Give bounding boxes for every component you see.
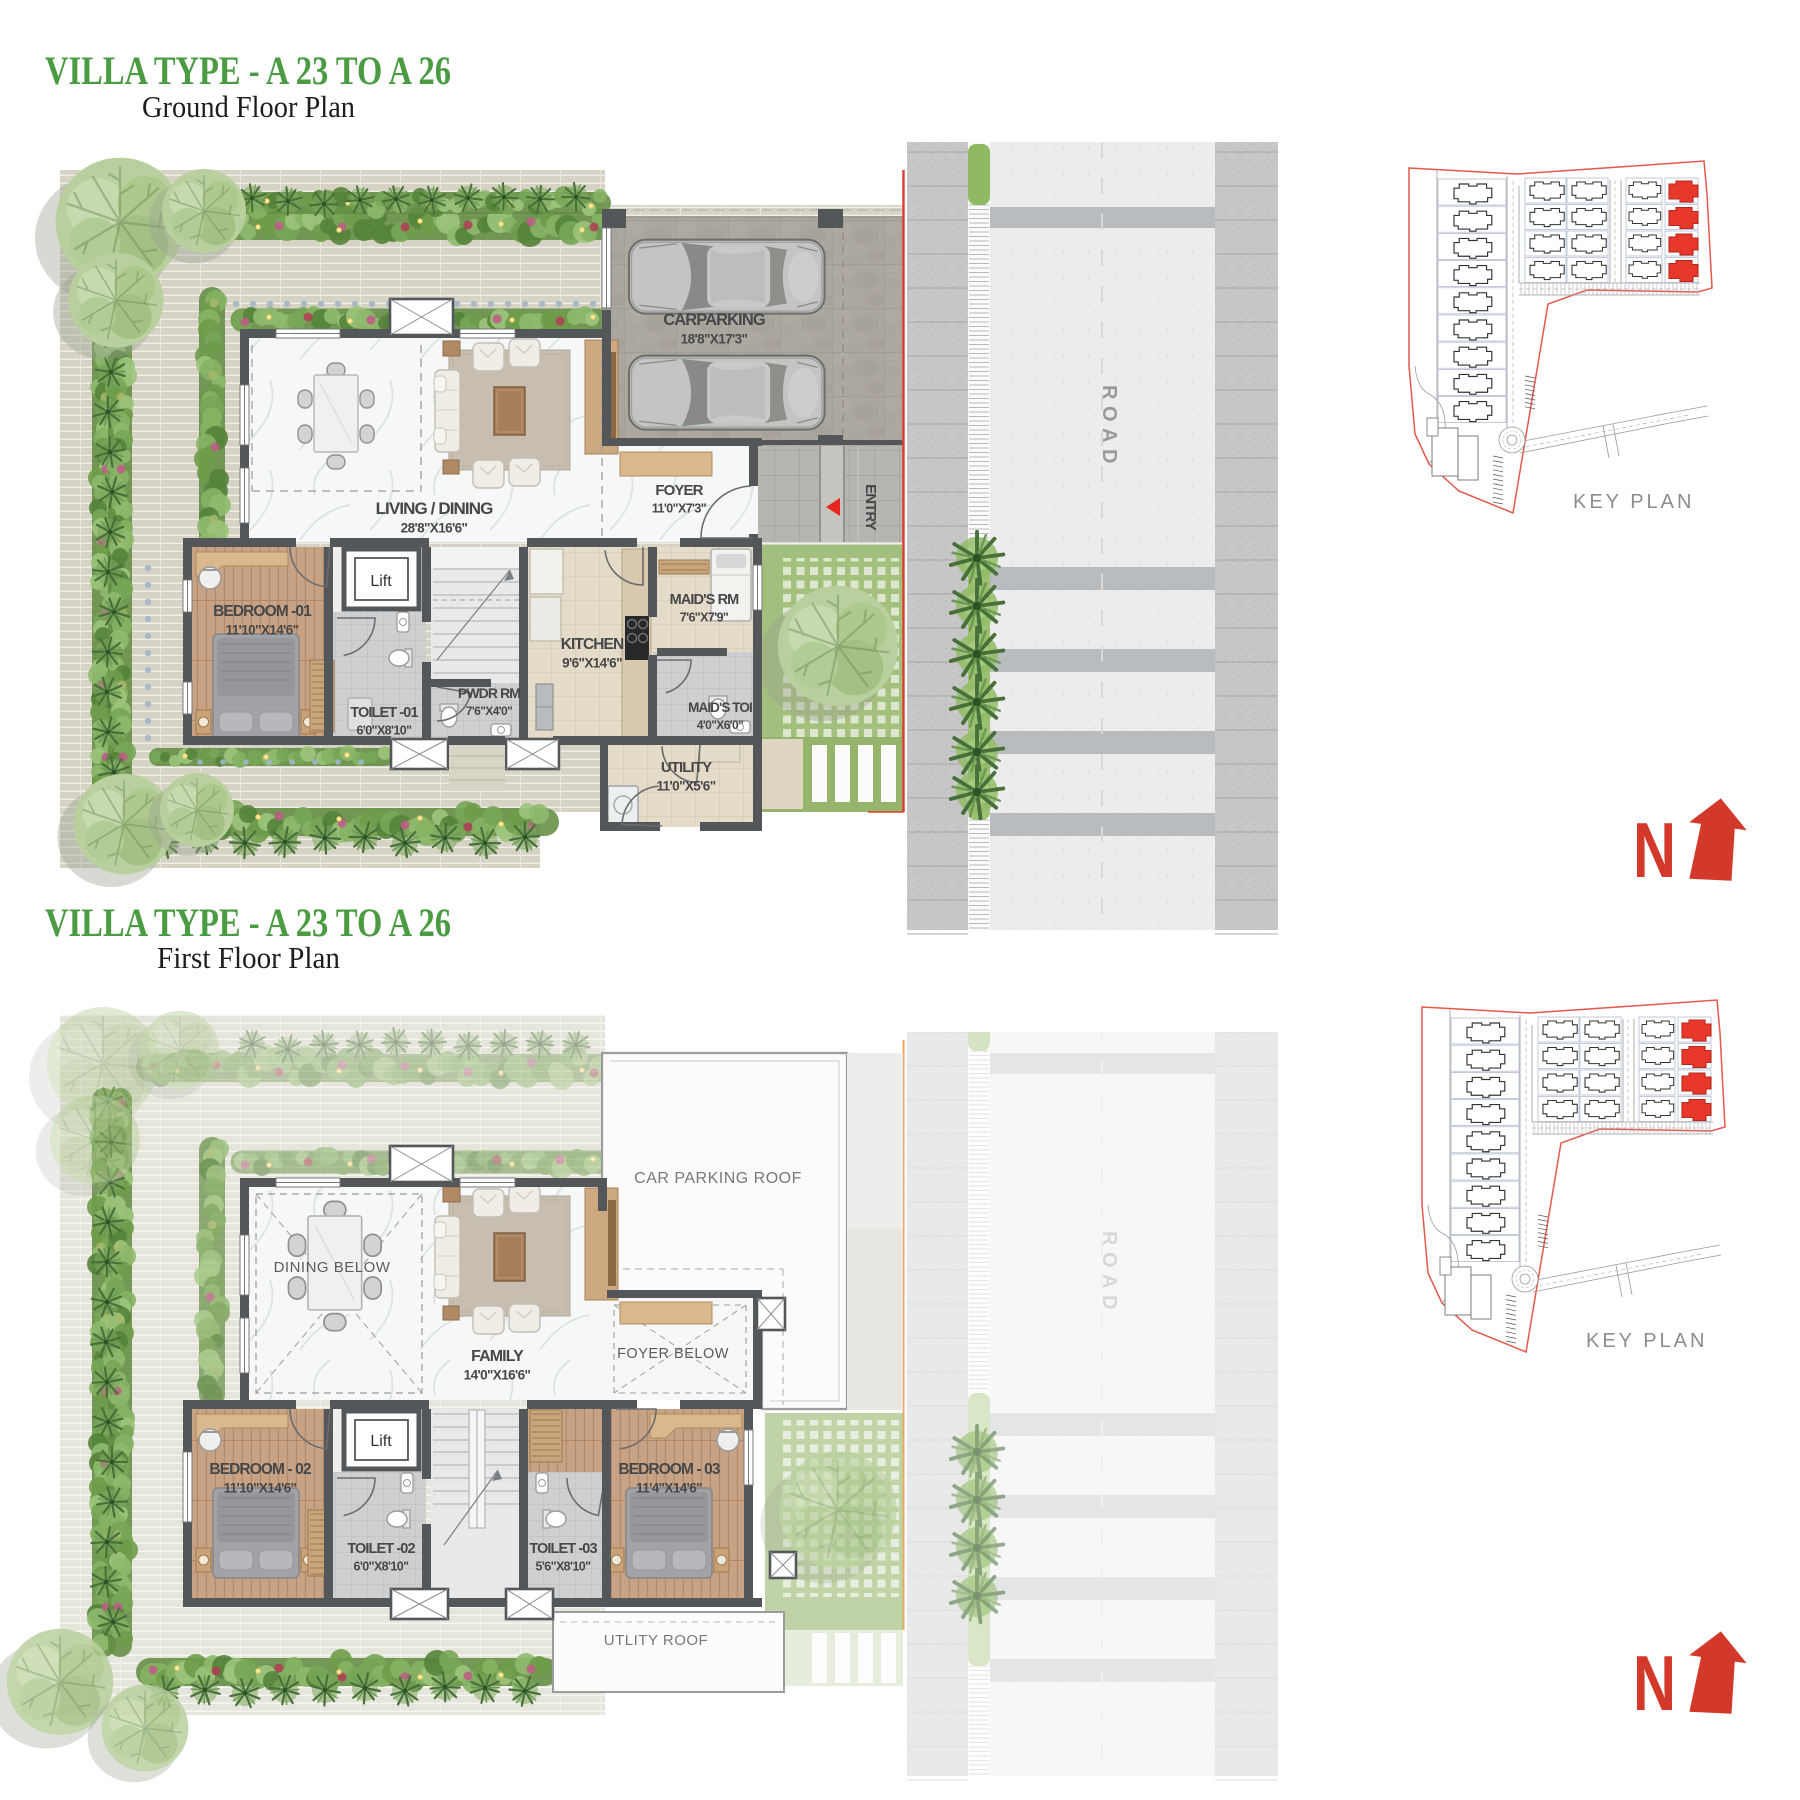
svg-text:14'0"X16'6": 14'0"X16'6" (464, 1368, 531, 1383)
svg-text:PWDR RM: PWDR RM (458, 685, 520, 701)
svg-text:28'8"X16'6": 28'8"X16'6" (401, 521, 468, 536)
svg-text:TOILET -03: TOILET -03 (529, 1541, 597, 1557)
svg-text:UTLITY ROOF: UTLITY ROOF (604, 1632, 708, 1649)
svg-text:MAID'S TOI: MAID'S TOI (688, 700, 752, 715)
svg-text:7'6"X7'9": 7'6"X7'9" (680, 611, 729, 625)
svg-text:6'0"X8'10": 6'0"X8'10" (354, 1560, 410, 1574)
svg-text:18'8"X17'3": 18'8"X17'3" (681, 332, 748, 347)
svg-text:BEDROOM -01: BEDROOM -01 (213, 603, 312, 620)
svg-text:FOYER: FOYER (655, 482, 703, 499)
svg-text:Lift: Lift (370, 1433, 392, 1450)
svg-text:MAID'S RM: MAID'S RM (670, 592, 739, 608)
svg-text:11'4"X14'6": 11'4"X14'6" (636, 1481, 702, 1496)
svg-text:5'6"X8'10": 5'6"X8'10" (536, 1560, 592, 1574)
svg-text:4'0"X6'0": 4'0"X6'0" (697, 718, 743, 732)
svg-text:11'0"X5'6": 11'0"X5'6" (656, 779, 715, 794)
svg-text:LIVING / DINING: LIVING / DINING (376, 499, 494, 518)
svg-text:TOILET -02: TOILET -02 (347, 1541, 415, 1557)
svg-text:BEDROOM - 03: BEDROOM - 03 (618, 1461, 720, 1478)
svg-text:TOILET -01: TOILET -01 (350, 705, 418, 721)
svg-text:Ground Floor Plan: Ground Floor Plan (142, 89, 355, 124)
svg-text:ENTRY: ENTRY (862, 484, 879, 531)
svg-text:VILLA TYPE - A 23 TO A 26: VILLA TYPE - A 23 TO A 26 (45, 48, 451, 93)
svg-text:CARPARKING: CARPARKING (663, 311, 765, 329)
svg-text:CAR PARKING ROOF: CAR PARKING ROOF (634, 1170, 802, 1187)
svg-text:DINING BELOW: DINING BELOW (274, 1259, 391, 1276)
svg-text:Lift: Lift (370, 573, 392, 590)
svg-text:First Floor Plan: First Floor Plan (157, 940, 340, 975)
svg-text:7'6"X4'0": 7'6"X4'0" (466, 704, 512, 718)
svg-text:FOYER BELOW: FOYER BELOW (617, 1346, 729, 1362)
svg-text:VILLA TYPE - A 23 TO A 26: VILLA TYPE - A 23 TO A 26 (45, 900, 451, 945)
svg-text:BEDROOM - 02: BEDROOM - 02 (209, 1461, 310, 1478)
svg-text:FAMILY: FAMILY (471, 1348, 524, 1365)
svg-text:KITCHEN: KITCHEN (561, 636, 624, 653)
svg-text:11'10"X14'6": 11'10"X14'6" (226, 623, 299, 638)
svg-text:11'0"X7'3": 11'0"X7'3" (652, 502, 707, 516)
svg-text:11'10"X14'6": 11'10"X14'6" (224, 1481, 297, 1496)
svg-text:6'0"X8'10": 6'0"X8'10" (357, 724, 413, 738)
svg-text:9'6"X14'6": 9'6"X14'6" (562, 656, 622, 671)
svg-text:UTILITY: UTILITY (661, 759, 712, 776)
